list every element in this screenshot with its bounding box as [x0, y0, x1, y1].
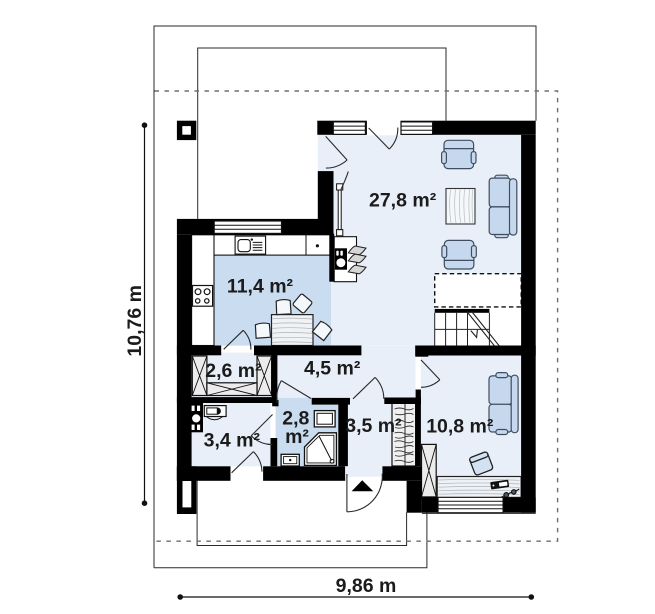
svg-text:3,5 m²: 3,5 m² — [345, 415, 402, 437]
svg-text:4,5 m²: 4,5 m² — [304, 358, 361, 380]
svg-text:11,4 m²: 11,4 m² — [227, 275, 294, 297]
svg-text:10,76 m: 10,76 m — [124, 285, 146, 357]
svg-text:9,86 m: 9,86 m — [336, 575, 397, 597]
svg-text:2,6 m²: 2,6 m² — [205, 360, 262, 382]
svg-text:3,4 m²: 3,4 m² — [204, 430, 261, 452]
svg-text:27,8 m²: 27,8 m² — [369, 190, 437, 212]
svg-text:10,8 m²: 10,8 m² — [426, 416, 494, 438]
svg-text:m²: m² — [285, 426, 309, 448]
